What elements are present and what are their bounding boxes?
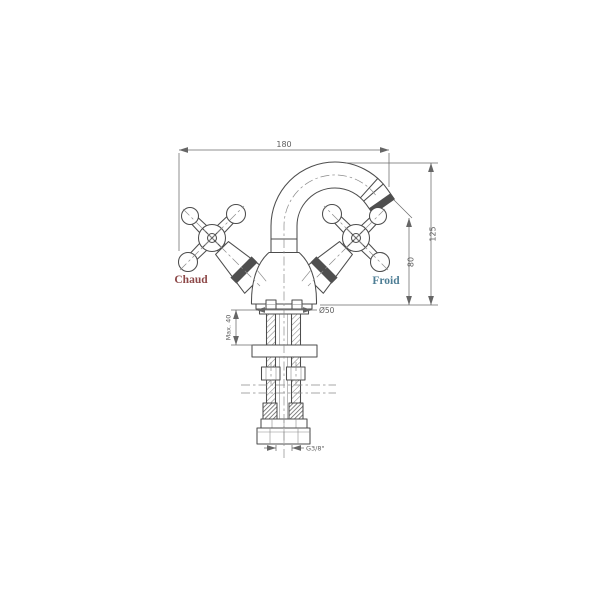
mounting-assembly bbox=[252, 300, 317, 444]
dim-max-thickness-text: Max. 40 bbox=[225, 315, 233, 341]
dim-outlet-height-text: 80 bbox=[407, 257, 416, 267]
thread-section bbox=[263, 403, 277, 419]
connection-hex-nut bbox=[257, 428, 310, 444]
faucet-technical-drawing: 180 125 80 Max. 40 Ø50 bbox=[0, 0, 600, 600]
dim-supply-thread: G3/8" bbox=[264, 445, 325, 453]
dim-overall-height-text: 125 bbox=[429, 226, 438, 241]
drawing-svg: 180 125 80 Max. 40 Ø50 bbox=[0, 0, 600, 600]
dim-supply-thread-text: G3/8" bbox=[306, 445, 325, 453]
cold-water-label: Froid bbox=[372, 275, 400, 287]
faucet-body-group bbox=[179, 162, 395, 444]
dim-overall-width-text: 180 bbox=[276, 140, 291, 149]
dim-base-diameter-text: Ø50 bbox=[319, 306, 335, 315]
hot-water-label: Chaud bbox=[174, 274, 208, 286]
leader-line bbox=[394, 200, 412, 218]
thread-section bbox=[289, 403, 303, 419]
dim-max-thickness: Max. 40 bbox=[225, 310, 258, 345]
dim-outlet-height: 80 bbox=[394, 200, 416, 305]
clamp-flange bbox=[252, 345, 317, 357]
